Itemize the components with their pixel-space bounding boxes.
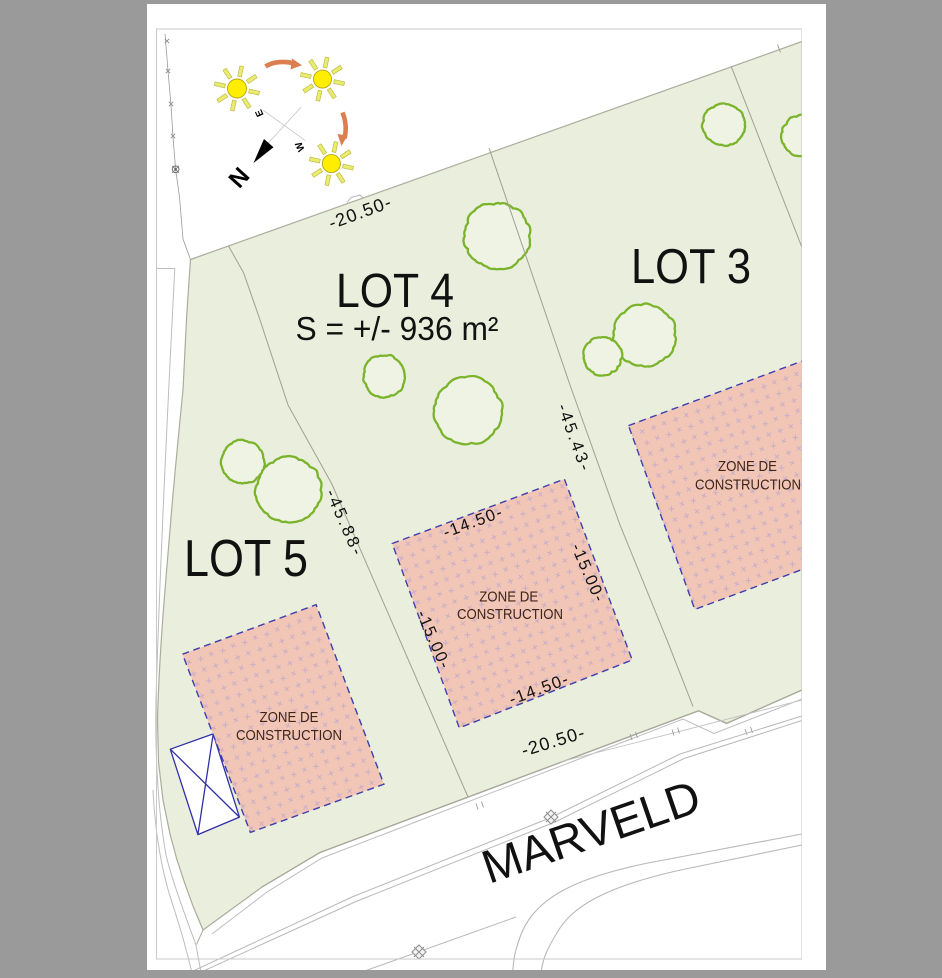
svg-text:ZONE DE: ZONE DE — [479, 590, 538, 606]
svg-text:LOT 5: LOT 5 — [184, 530, 308, 588]
svg-text:CONSTRUCTION: CONSTRUCTION — [695, 478, 801, 494]
svg-text:ZONE DE: ZONE DE — [260, 710, 319, 726]
svg-text:ZONE DE: ZONE DE — [718, 459, 777, 475]
svg-text:LOT 3: LOT 3 — [631, 240, 751, 294]
svg-text:S = +/- 936 m²: S = +/- 936 m² — [296, 310, 499, 347]
svg-text:CONSTRUCTION: CONSTRUCTION — [457, 607, 563, 623]
svg-text:CONSTRUCTION: CONSTRUCTION — [236, 728, 342, 744]
